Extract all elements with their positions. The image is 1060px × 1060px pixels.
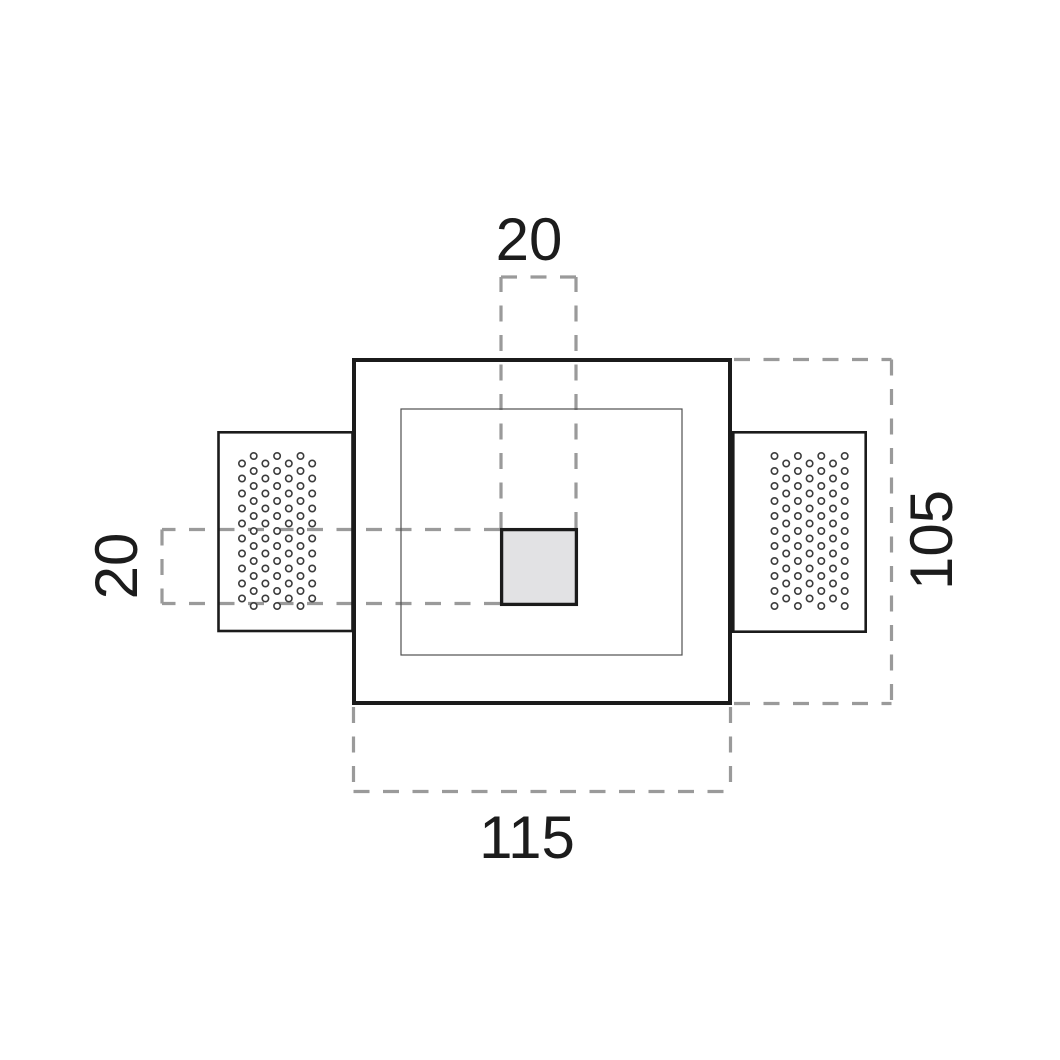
perforation-hole [818, 513, 824, 519]
perforation-hole [309, 535, 315, 541]
perforation-hole [783, 520, 789, 526]
perforation-hole [771, 498, 777, 504]
perforation-hole [795, 528, 801, 534]
perforation-hole [806, 460, 812, 466]
perforation-hole [297, 453, 303, 459]
perforation-hole [286, 565, 292, 571]
perforation-hole [830, 565, 836, 571]
perforation-hole [771, 543, 777, 549]
perforation-hole [286, 475, 292, 481]
perforation-hole [309, 580, 315, 586]
perforation-hole [806, 550, 812, 556]
perforation-hole [297, 468, 303, 474]
perforation-hole [262, 565, 268, 571]
perforation-hole [297, 588, 303, 594]
perforation-hole [251, 573, 257, 579]
perforation-hole [274, 453, 280, 459]
perforation-hole [806, 520, 812, 526]
perforation-hole [286, 505, 292, 511]
perforation-hole [771, 528, 777, 534]
perforation-hole [297, 513, 303, 519]
perforation-hole [262, 475, 268, 481]
perforation-hole [830, 595, 836, 601]
perforation-hole [806, 595, 812, 601]
perforation-hole [274, 543, 280, 549]
perforation-hole [771, 603, 777, 609]
perforation-hole [262, 550, 268, 556]
perforation-hole [309, 595, 315, 601]
perforation-hole [842, 498, 848, 504]
perforation-hole [251, 513, 257, 519]
perforation-hole [783, 580, 789, 586]
perforation-hole [795, 603, 801, 609]
perforation-hole [274, 513, 280, 519]
perforation-hole [795, 513, 801, 519]
perforation-hole [251, 453, 257, 459]
perforation-hole [842, 573, 848, 579]
perforation-hole [842, 468, 848, 474]
perforation-hole [239, 490, 245, 496]
perforation-hole [771, 558, 777, 564]
perforation-hole [262, 595, 268, 601]
perforation-hole [795, 558, 801, 564]
perforation-hole [274, 573, 280, 579]
perforation-hole [251, 483, 257, 489]
perforation-hole [783, 595, 789, 601]
perforation-hole [818, 573, 824, 579]
perforation-hole [818, 558, 824, 564]
perforation-hole [806, 490, 812, 496]
perforation-hole [842, 528, 848, 534]
perforation-hole [262, 580, 268, 586]
perforation-hole [309, 475, 315, 481]
perforation-hole [830, 520, 836, 526]
perforation-hole [251, 588, 257, 594]
perforation-hole [274, 558, 280, 564]
perforation-hole [842, 543, 848, 549]
perforation-hole [830, 505, 836, 511]
perforation-hole [818, 468, 824, 474]
perforation-hole [783, 550, 789, 556]
perforation-hole [806, 505, 812, 511]
perforation-hole [251, 558, 257, 564]
perforation-hole [239, 565, 245, 571]
perforation-hole [309, 550, 315, 556]
perforation-hole [818, 543, 824, 549]
perforation-hole [309, 565, 315, 571]
perforation-hole [795, 498, 801, 504]
perforation-hole [795, 453, 801, 459]
perforation-hole [297, 573, 303, 579]
perforation-hole [309, 460, 315, 466]
perforation-hole [262, 535, 268, 541]
perforation-hole [842, 453, 848, 459]
perforation-hole [297, 498, 303, 504]
perforation-hole [818, 483, 824, 489]
perforation-hole [818, 453, 824, 459]
perforation-hole [806, 580, 812, 586]
perforation-hole [251, 468, 257, 474]
perforation-hole [795, 573, 801, 579]
perforation-hole [239, 520, 245, 526]
perforation-hole [795, 483, 801, 489]
perforation-hole [309, 520, 315, 526]
dimension-label-body-width: 115 [479, 808, 575, 868]
perforation-hole [239, 595, 245, 601]
perforation-hole [842, 513, 848, 519]
perforation-hole [842, 558, 848, 564]
perforation-hole [286, 595, 292, 601]
perforation-hole [274, 528, 280, 534]
perforation-hole [818, 588, 824, 594]
perforation-hole [297, 603, 303, 609]
perforation-hole [771, 513, 777, 519]
perforation-hole [286, 490, 292, 496]
perforation-hole [830, 460, 836, 466]
dimension-label-center-square-height: 20 [87, 533, 147, 600]
perforation-hole [783, 490, 789, 496]
perforation-hole [795, 588, 801, 594]
perforation-hole [262, 505, 268, 511]
perforation-hole [783, 475, 789, 481]
perforation-hole [286, 550, 292, 556]
perforation-hole [239, 460, 245, 466]
perforation-hole [286, 520, 292, 526]
perforation-hole [297, 543, 303, 549]
perforation-hole [842, 588, 848, 594]
perforation-hole [818, 603, 824, 609]
perforation-hole [818, 528, 824, 534]
perforation-hole [297, 483, 303, 489]
perforation-hole [297, 528, 303, 534]
perforation-hole [286, 460, 292, 466]
perforation-hole [297, 558, 303, 564]
perforation-hole [771, 573, 777, 579]
perforation-hole [251, 498, 257, 504]
perforation-hole [830, 580, 836, 586]
perforation-hole [830, 490, 836, 496]
center-light-square [502, 530, 577, 605]
perforation-hole [783, 535, 789, 541]
perforation-hole [309, 490, 315, 496]
perforation-hole [830, 535, 836, 541]
perforation-hole [262, 460, 268, 466]
left-panel-fill [217, 431, 353, 632]
perforation-hole [274, 603, 280, 609]
perforation-hole [251, 603, 257, 609]
perforation-hole [783, 565, 789, 571]
perforation-hole [274, 468, 280, 474]
perforation-hole [274, 483, 280, 489]
perforation-hole [842, 483, 848, 489]
perforation-hole [818, 498, 824, 504]
perforation-hole [309, 505, 315, 511]
perforation-hole [830, 550, 836, 556]
perforation-hole [795, 468, 801, 474]
perforation-hole [771, 453, 777, 459]
perforation-hole [274, 588, 280, 594]
perforation-hole [239, 475, 245, 481]
perforation-hole [274, 498, 280, 504]
perforation-hole [239, 535, 245, 541]
perforation-hole [286, 535, 292, 541]
perforation-hole [286, 580, 292, 586]
dimension-label-center-square-width: 20 [496, 210, 563, 270]
perforation-hole [239, 550, 245, 556]
perforation-hole [262, 520, 268, 526]
dimension-label-body-height: 105 [902, 490, 962, 590]
perforation-hole [771, 483, 777, 489]
perforation-hole [262, 490, 268, 496]
perforation-hole [783, 460, 789, 466]
perforation-hole [842, 603, 848, 609]
perforation-hole [830, 475, 836, 481]
perforation-hole [795, 543, 801, 549]
perforation-hole [239, 580, 245, 586]
perforation-hole [783, 505, 789, 511]
perforation-hole [771, 468, 777, 474]
perforation-hole [771, 588, 777, 594]
perforation-hole [251, 528, 257, 534]
perforation-hole [806, 475, 812, 481]
perforation-hole [806, 565, 812, 571]
perforation-hole [239, 505, 245, 511]
fixture-technical-drawing: 20 20 105 115 [0, 0, 1060, 1060]
perforation-hole [806, 535, 812, 541]
perforation-hole [251, 543, 257, 549]
